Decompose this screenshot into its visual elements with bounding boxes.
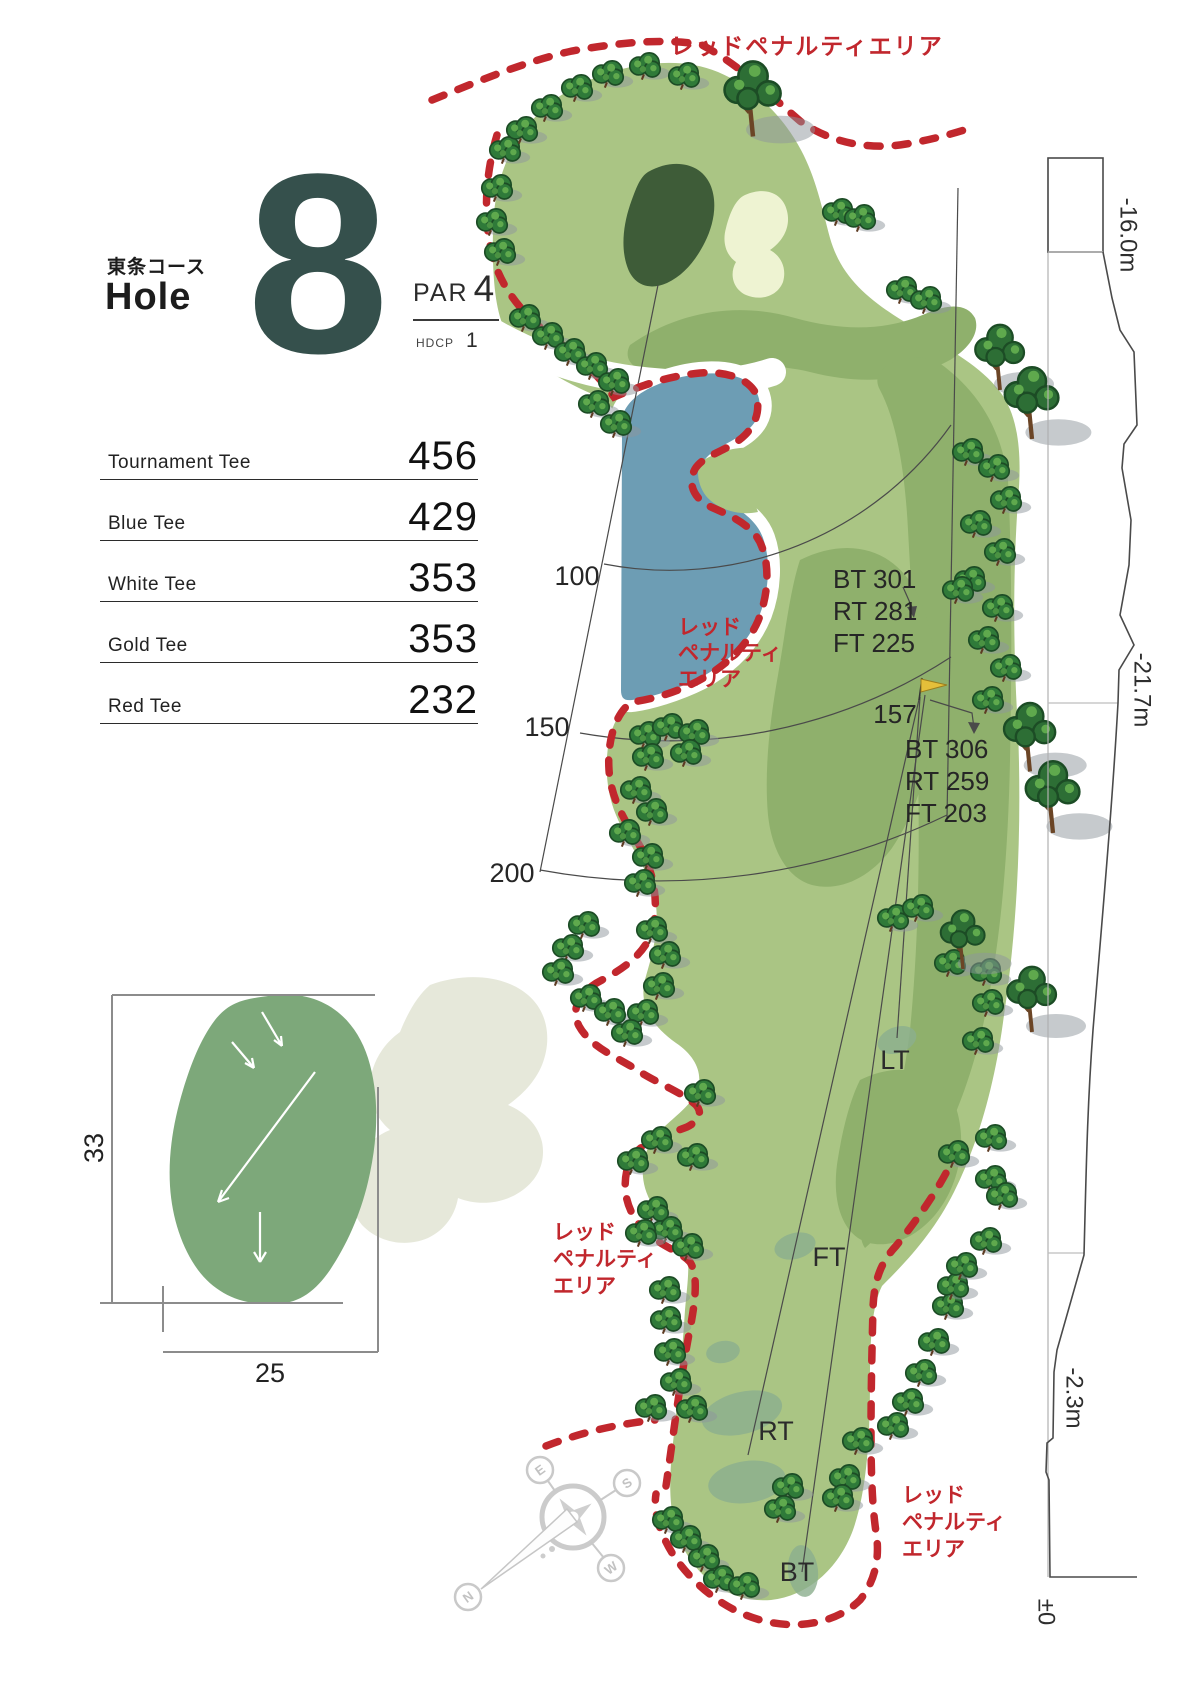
arc-label-150: 150: [524, 712, 569, 742]
tee-row-white: White Tee 353: [100, 541, 478, 602]
bush-icon: [919, 1329, 959, 1356]
penalty-label-left-2: ペナルティ: [553, 1248, 657, 1271]
bush-icon: [911, 287, 951, 314]
hole-map-page: -16.0m -21.7m -2.3m ±0 33 25: [0, 0, 1190, 1683]
tee-row-blue: Blue Tee 429: [100, 480, 478, 541]
tee-name: Tournament Tee: [108, 452, 251, 474]
penalty-label-left-1: レッド: [553, 1221, 616, 1244]
compass-rose: N E S W: [455, 1457, 640, 1610]
bush-icon: [893, 1389, 933, 1416]
pine-tree-icon: [1007, 967, 1086, 1038]
penalty-label-bottom-1: レッド: [902, 1484, 965, 1507]
compass-needle: [481, 1509, 577, 1589]
penalty-label-water-2: ペナルティ: [678, 642, 782, 665]
penalty-label-top: レッドペナルティエリア: [670, 33, 944, 59]
tee-yards: 456: [408, 434, 478, 479]
bush-icon: [553, 935, 593, 962]
par-label: PAR: [413, 279, 469, 307]
elevation-base-label: ±0: [1033, 1599, 1060, 1626]
tee-marker-bt: BT: [780, 1557, 815, 1587]
green-inset: 33 25: [79, 977, 547, 1388]
penalty-label-water-1: レッド: [678, 616, 741, 639]
elevation-top-label: -16.0m: [1115, 198, 1142, 273]
hdcp-value: 1: [466, 329, 478, 352]
mid-distance-label: 157: [873, 699, 916, 729]
bush-icon: [976, 1125, 1016, 1152]
tee-name: Red Tee: [108, 696, 182, 718]
carry-group1-ft: FT 225: [833, 628, 915, 658]
carry-group2-ft: FT 203: [905, 798, 987, 828]
elevation-middle-label: -21.7m: [1129, 653, 1156, 728]
bush-icon: [636, 1395, 676, 1422]
hdcp-label: HDCP: [416, 336, 454, 350]
bush-icon: [878, 1413, 918, 1440]
par-row: PAR4: [413, 268, 494, 310]
inset-width-label: 25: [255, 1358, 285, 1388]
tee-row-red: Red Tee 232: [100, 663, 478, 724]
hole-number: 8: [198, 144, 438, 384]
course-name: 東条コース: [107, 252, 206, 279]
penalty-label-bottom-2: ペナルティ: [902, 1511, 1006, 1534]
tee-name: White Tee: [108, 574, 197, 596]
arc-label-100: 100: [554, 561, 599, 591]
arc-label-200: 200: [489, 858, 534, 888]
bush-icon: [845, 205, 885, 232]
practice-bunker-shape: [350, 977, 548, 1243]
elevation-line: [1046, 252, 1137, 1577]
carry-group1-rt: RT 281: [833, 596, 917, 626]
carry-group1-bt: BT 301: [833, 564, 916, 594]
bush-icon: [971, 1228, 1011, 1255]
bush-icon: [906, 1360, 946, 1387]
tee-marker-lt: LT: [880, 1045, 910, 1075]
hole-word: Hole: [105, 276, 191, 319]
tee-yards: 353: [408, 617, 478, 662]
inset-depth-label: 33: [79, 1133, 109, 1163]
tee-name: Gold Tee: [108, 635, 188, 657]
penalty-label-bottom-3: エリア: [902, 1538, 965, 1561]
penalty-label-water-3: エリア: [678, 668, 741, 691]
par-value: 4: [474, 268, 495, 309]
elevation-profile: -16.0m -21.7m -2.3m ±0: [1033, 158, 1156, 1625]
par-divider: [413, 319, 499, 321]
elevation-lower-label: -2.3m: [1061, 1367, 1088, 1428]
tee-yards: 353: [408, 556, 478, 601]
bush-icon: [543, 959, 583, 986]
bush-icon: [650, 1277, 690, 1304]
tee-yards: 429: [408, 495, 478, 540]
tee-row-gold: Gold Tee 353: [100, 602, 478, 663]
hdcp-row: HDCP1: [416, 329, 478, 353]
tee-name: Blue Tee: [108, 513, 186, 535]
tee-marker-ft: FT: [813, 1242, 846, 1272]
tee-marker-rt: RT: [758, 1416, 794, 1446]
tee-row-tournament: Tournament Tee 456: [100, 419, 478, 480]
carry-group2-bt: BT 306: [905, 734, 988, 764]
tee-yards: 232: [408, 678, 478, 723]
penalty-label-left-3: エリア: [553, 1275, 616, 1298]
carry-group2-rt: RT 259: [905, 766, 989, 796]
bush-icon: [987, 1183, 1027, 1210]
inset-green-shape: [170, 995, 377, 1304]
